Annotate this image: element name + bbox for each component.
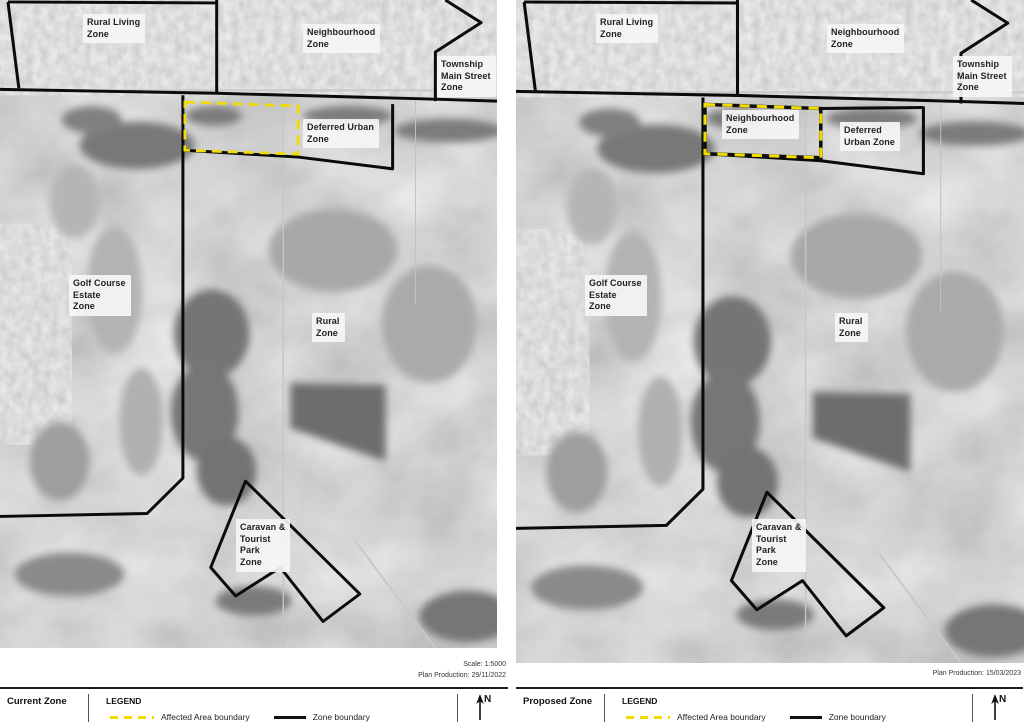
north-label: N <box>484 694 491 705</box>
north-arrow: N <box>471 692 497 722</box>
aerial-map-current: Rural Living ZoneNeighbourhood ZoneTowns… <box>0 0 497 648</box>
aerial-basemap <box>0 0 497 648</box>
legend-title: LEGEND <box>106 696 141 706</box>
legend-zone-label: Zone boundary <box>313 712 370 722</box>
legend-title: LEGEND <box>622 696 657 706</box>
legend-affected-label: Affected Area boundary <box>161 712 250 722</box>
aerial-basemap <box>516 0 1024 663</box>
legend-zone-label: Zone boundary <box>829 712 886 722</box>
legend-affected-label: Affected Area boundary <box>677 712 766 722</box>
legend-row: Affected Area boundary Zone boundary <box>110 712 370 722</box>
plan-meta: Scale: 1:5000 Plan Production: 29/11/202… <box>418 660 506 682</box>
panel-title: Proposed Zone <box>523 696 592 707</box>
legend-row: Affected Area boundary Zone boundary <box>626 712 886 722</box>
panel-proposed-zone: Rural Living ZoneNeighbourhood ZoneTowns… <box>516 0 1024 724</box>
footer-bar: Proposed Zone LEGEND Affected Area bound… <box>516 689 1024 724</box>
footer-divider <box>604 694 605 722</box>
footer-divider <box>457 694 458 722</box>
footer-divider <box>972 694 973 722</box>
affected-area-line-sample <box>110 716 154 719</box>
north-label: N <box>999 694 1006 705</box>
panel-current-zone: Rural Living ZoneNeighbourhood ZoneTowns… <box>0 0 509 724</box>
aerial-map-proposed: Rural Living ZoneNeighbourhood ZoneTowns… <box>516 0 1024 663</box>
panel-title: Current Zone <box>7 696 67 707</box>
footer-bar: Current Zone LEGEND Affected Area bounda… <box>0 689 509 724</box>
zone-boundary-line-sample <box>274 716 306 719</box>
zone-boundary-line-sample <box>790 716 822 719</box>
north-arrow: N <box>986 692 1012 722</box>
footer-divider <box>88 694 89 722</box>
plan-meta: Plan Production: 15/03/2023 <box>933 669 1021 680</box>
affected-area-line-sample <box>626 716 670 719</box>
